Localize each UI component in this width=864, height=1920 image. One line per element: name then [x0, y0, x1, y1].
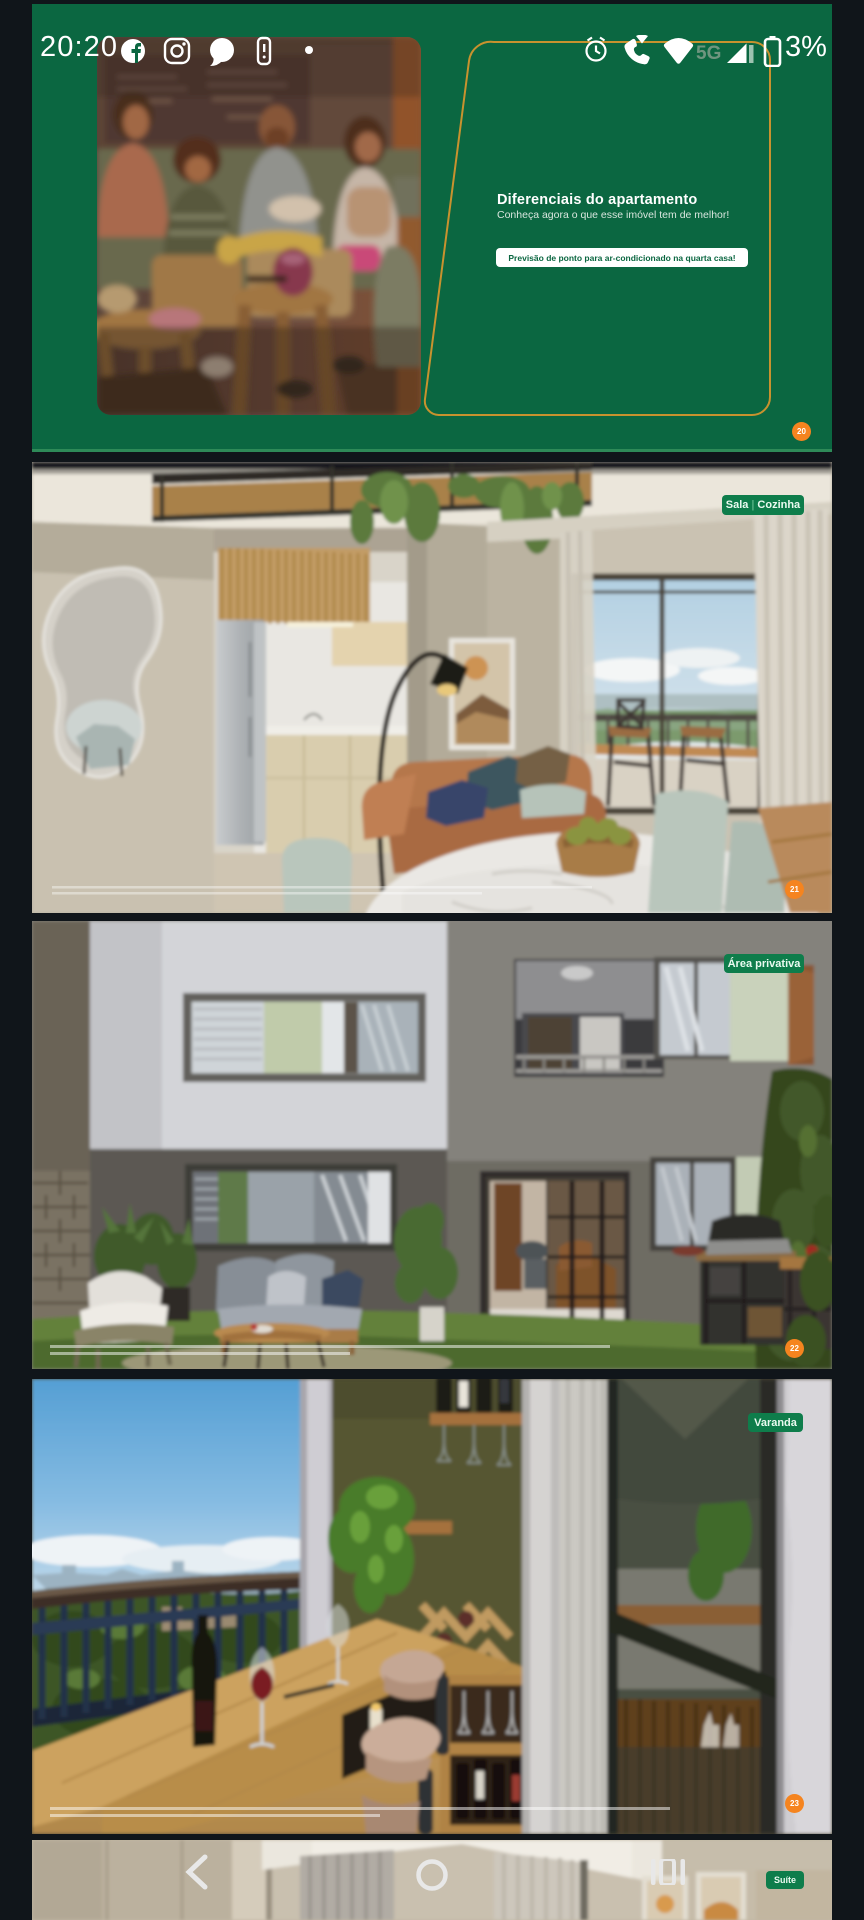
svg-text:5G: 5G — [696, 43, 721, 64]
